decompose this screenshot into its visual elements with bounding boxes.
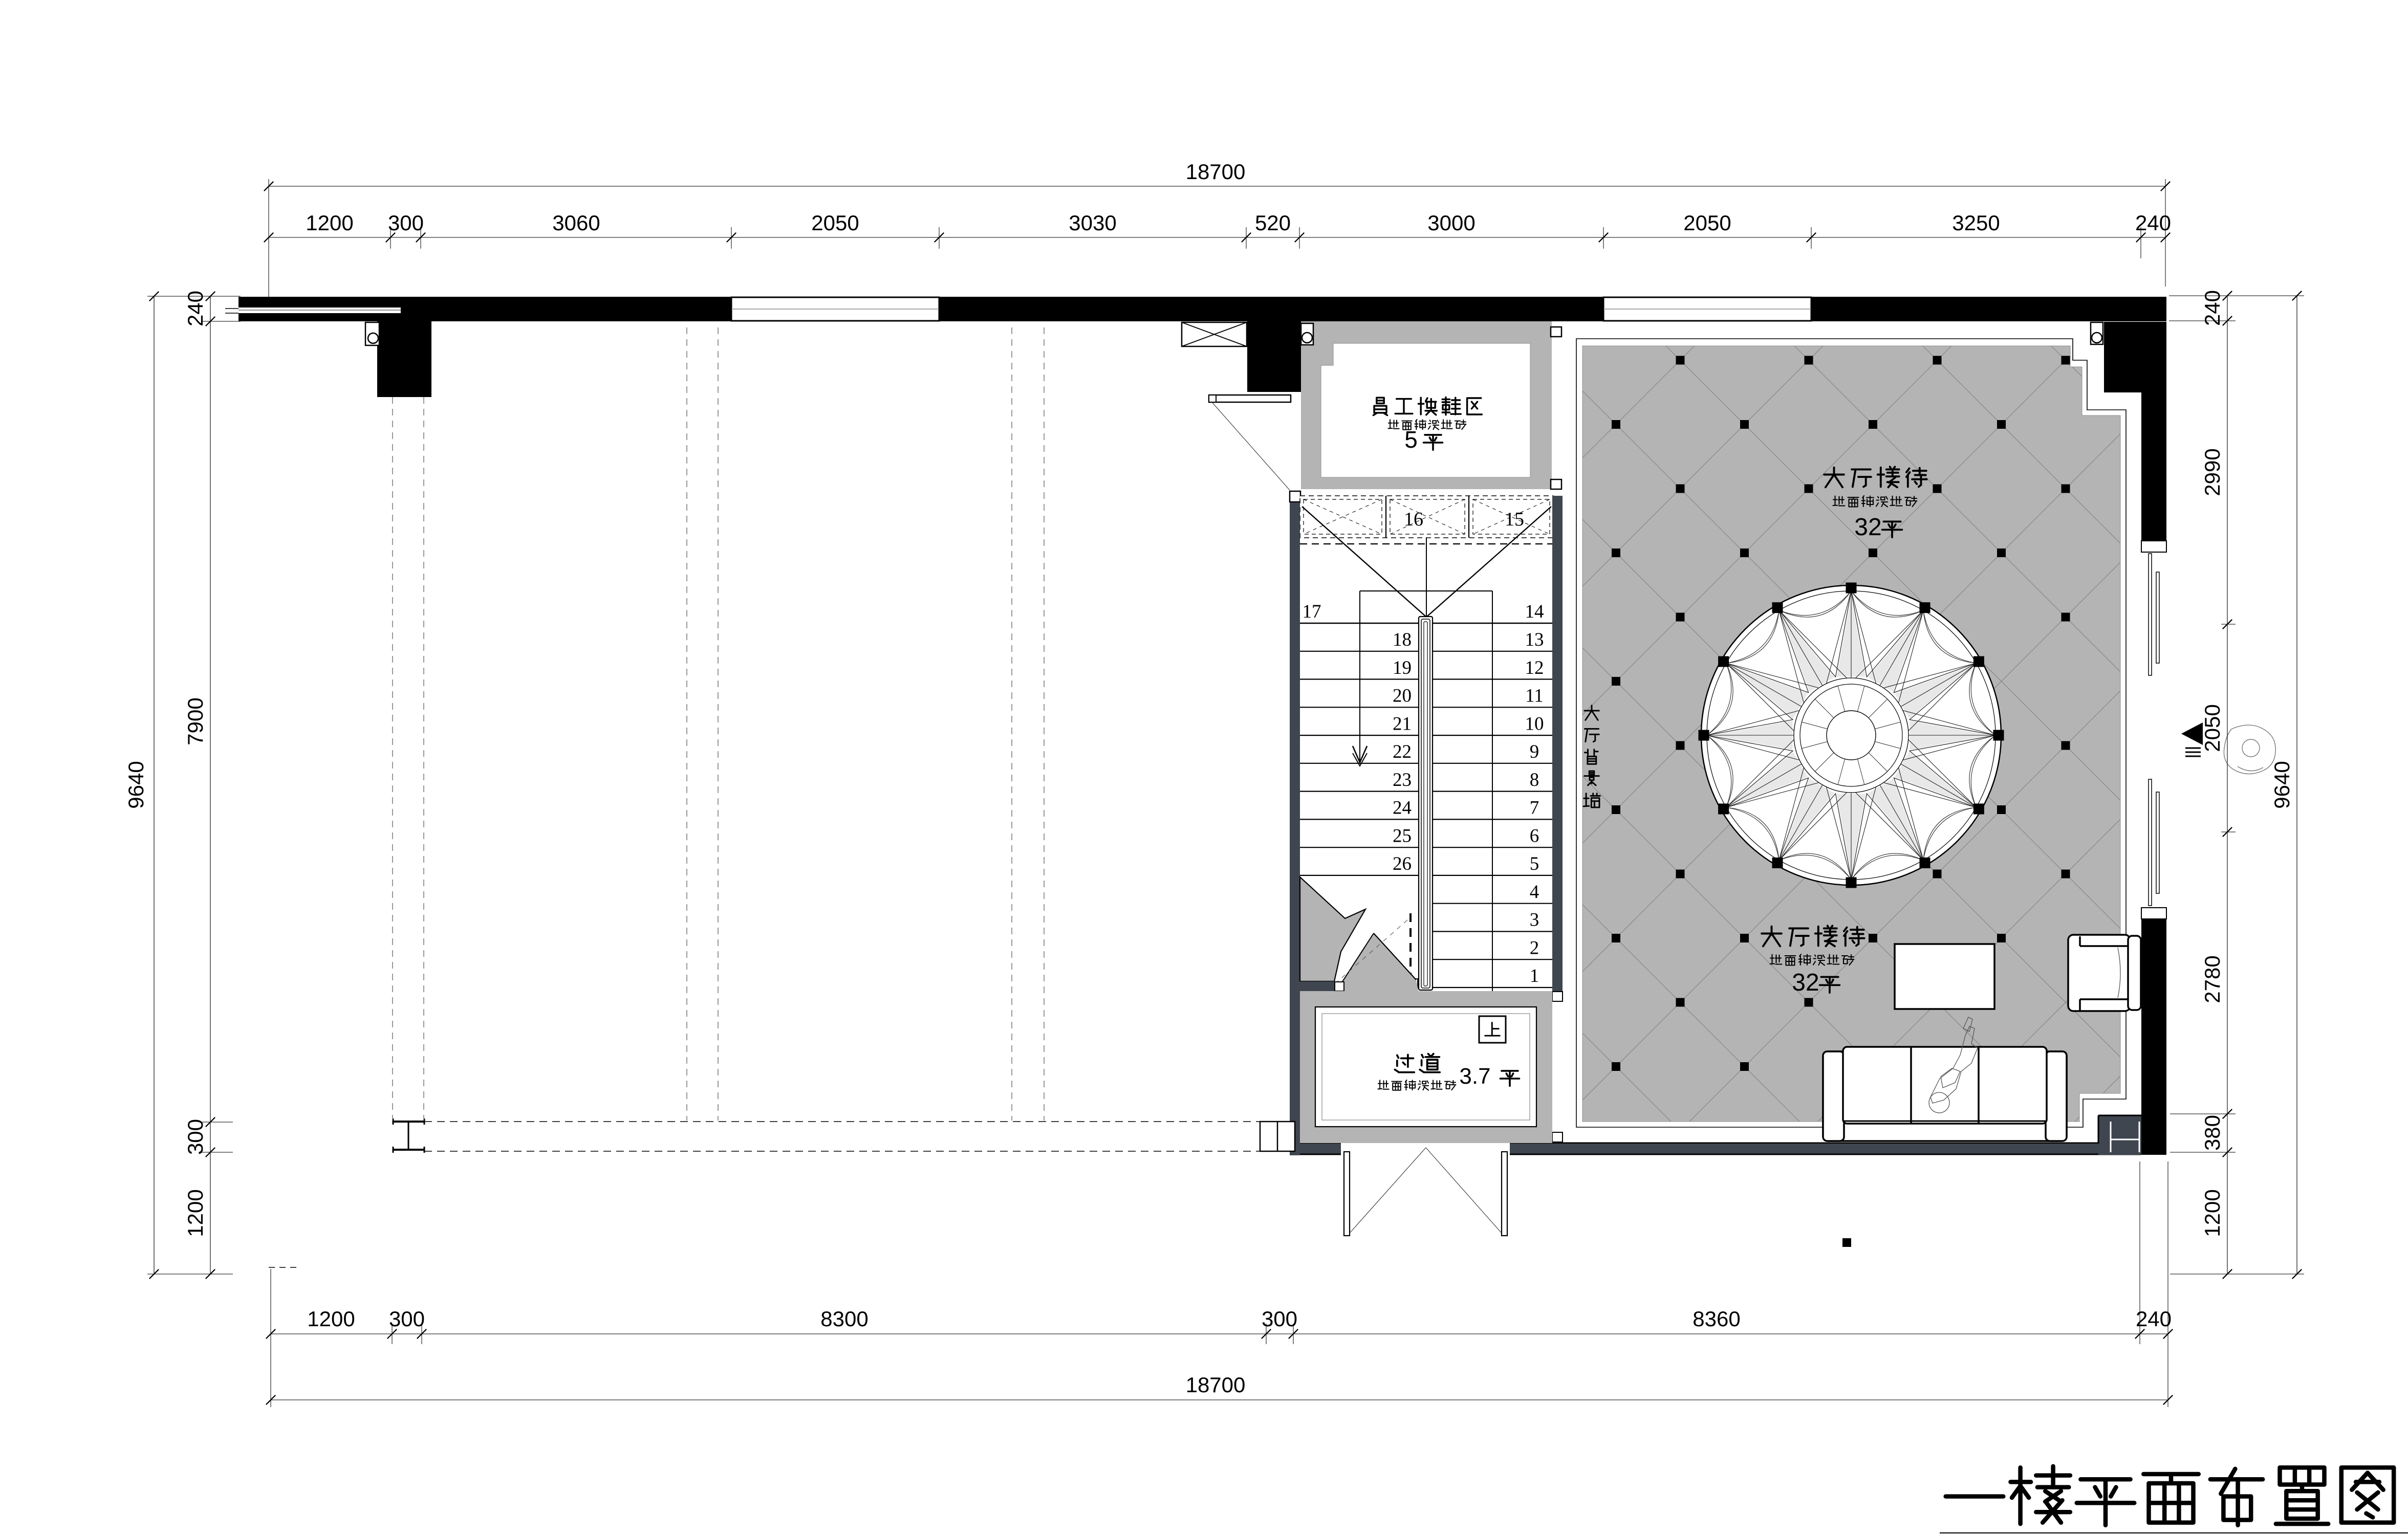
svg-text:2050: 2050 — [811, 211, 859, 235]
svg-text:3: 3 — [1530, 910, 1539, 931]
svg-text:7900: 7900 — [183, 697, 207, 745]
svg-text:5: 5 — [1404, 426, 1418, 453]
svg-text:8300: 8300 — [820, 1307, 868, 1331]
svg-text:16: 16 — [1404, 509, 1423, 530]
svg-text:9: 9 — [1530, 741, 1539, 762]
svg-text:380: 380 — [2200, 1115, 2224, 1151]
svg-text:25: 25 — [1393, 825, 1412, 846]
svg-text:24: 24 — [1393, 798, 1412, 819]
svg-text:240: 240 — [2135, 211, 2171, 235]
svg-text:3060: 3060 — [552, 211, 600, 235]
svg-text:8360: 8360 — [1693, 1307, 1740, 1331]
svg-text:9640: 9640 — [124, 761, 148, 808]
svg-text:10: 10 — [1525, 713, 1544, 734]
svg-text:26: 26 — [1393, 853, 1412, 874]
svg-text:5: 5 — [1530, 853, 1539, 874]
svg-text:22: 22 — [1393, 741, 1412, 762]
svg-text:15: 15 — [1505, 509, 1524, 530]
svg-text:1: 1 — [1530, 966, 1539, 986]
svg-text:8: 8 — [1530, 770, 1539, 791]
svg-text:3250: 3250 — [1952, 211, 2000, 235]
svg-text:1200: 1200 — [2200, 1189, 2224, 1237]
svg-text:1200: 1200 — [183, 1189, 207, 1237]
svg-text:18700: 18700 — [1186, 1373, 1246, 1397]
svg-text:520: 520 — [1255, 211, 1291, 235]
svg-text:2050: 2050 — [1683, 211, 1731, 235]
svg-text:17: 17 — [1303, 601, 1321, 622]
svg-text:2780: 2780 — [2200, 955, 2224, 1003]
svg-text:3.7: 3.7 — [1459, 1064, 1490, 1089]
svg-text:2990: 2990 — [2200, 448, 2224, 496]
svg-text:3030: 3030 — [1069, 211, 1116, 235]
svg-text:12: 12 — [1525, 657, 1544, 678]
svg-text:6: 6 — [1530, 825, 1539, 846]
svg-text:21: 21 — [1393, 713, 1412, 734]
svg-text:3000: 3000 — [1427, 211, 1475, 235]
svg-text:32: 32 — [1792, 969, 1819, 996]
svg-text:18: 18 — [1393, 629, 1412, 650]
svg-text:11: 11 — [1525, 686, 1544, 707]
svg-text:9640: 9640 — [2270, 761, 2294, 808]
svg-text:300: 300 — [1262, 1307, 1297, 1331]
svg-text:20: 20 — [1393, 686, 1412, 707]
svg-text:14: 14 — [1525, 601, 1544, 622]
svg-text:4: 4 — [1530, 882, 1539, 903]
svg-text:32: 32 — [1854, 514, 1881, 541]
svg-text:18700: 18700 — [1186, 160, 1246, 184]
svg-text:1200: 1200 — [307, 1307, 355, 1331]
svg-text:300: 300 — [389, 1307, 425, 1331]
svg-text:23: 23 — [1393, 770, 1412, 791]
svg-text:300: 300 — [388, 211, 424, 235]
svg-text:2050: 2050 — [2200, 704, 2224, 752]
svg-text:300: 300 — [183, 1119, 207, 1155]
svg-text:19: 19 — [1393, 657, 1412, 678]
svg-text:1200: 1200 — [306, 211, 353, 235]
svg-text:13: 13 — [1525, 629, 1544, 650]
svg-text:240: 240 — [2136, 1307, 2172, 1331]
svg-text:7: 7 — [1530, 798, 1539, 819]
svg-text:2: 2 — [1530, 938, 1539, 959]
